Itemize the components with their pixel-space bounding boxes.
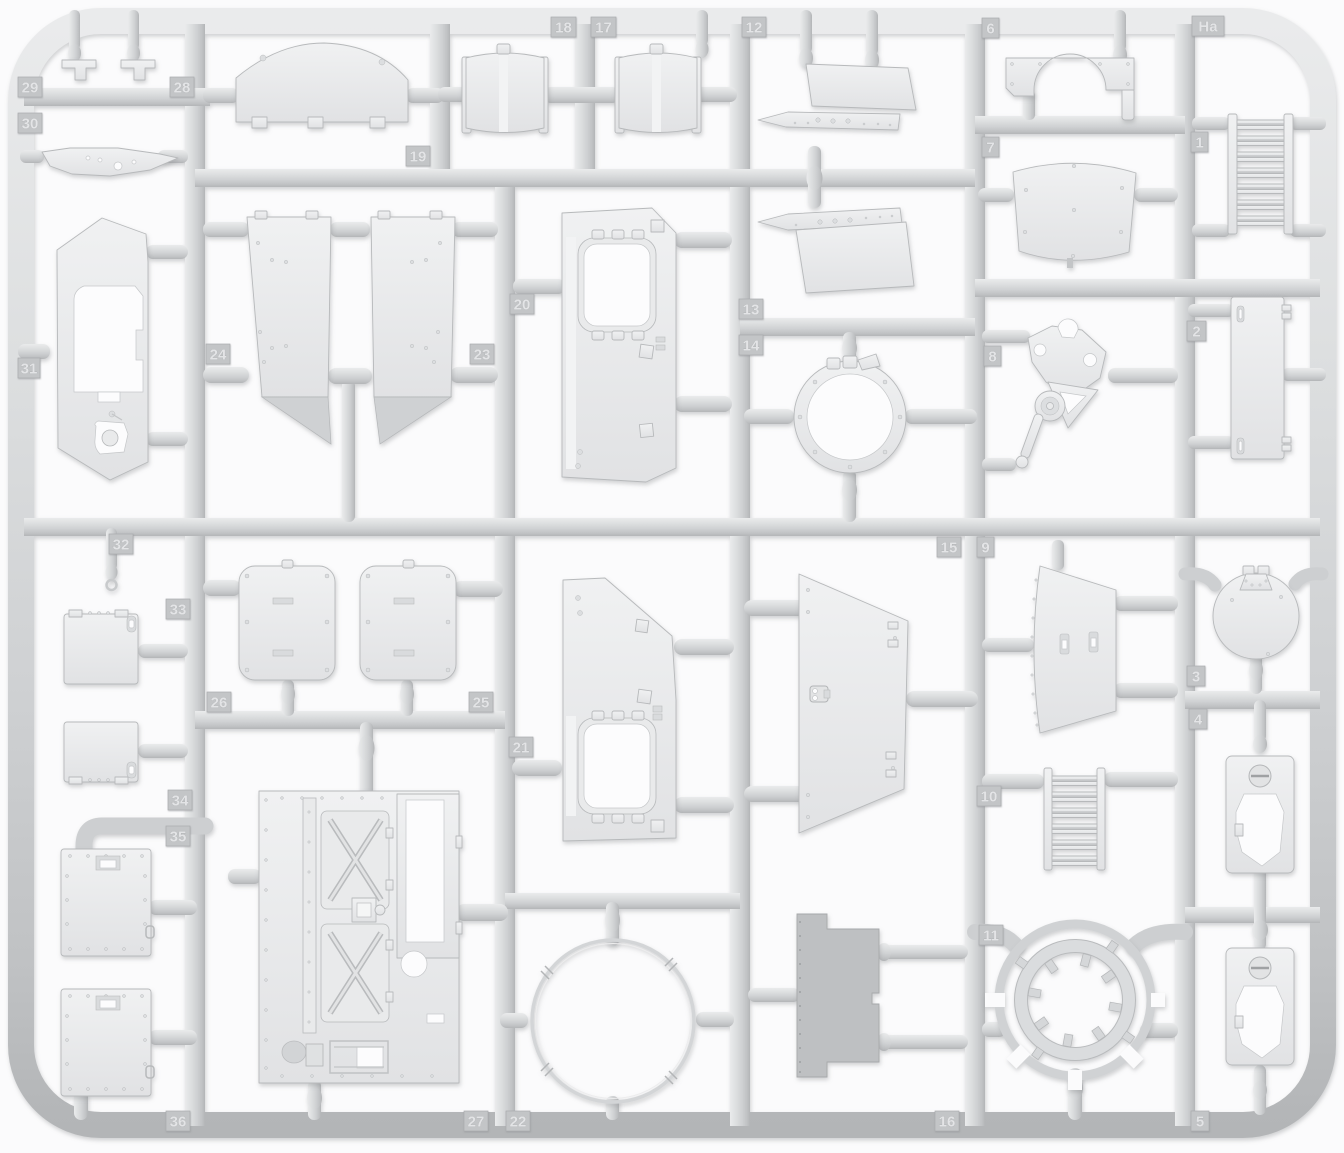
part-tag-label: 22: [510, 1114, 527, 1131]
part-tag-35: 35: [166, 826, 190, 846]
part-tag-17: 17: [591, 17, 616, 37]
part-2-door-panel: [1231, 297, 1291, 459]
part-tag-label: 3: [1192, 669, 1200, 686]
part-30-flat-bracket: [42, 148, 178, 176]
part-25-hatch: [360, 560, 456, 680]
part-4-frame-bracket: [1226, 756, 1294, 873]
part-tag-label: 21: [513, 740, 530, 757]
part-tag-15: 15: [937, 537, 961, 557]
part-20-cab-door: [562, 208, 676, 482]
part-tag-33: 33: [166, 599, 190, 619]
part-27-rear-door-panel: [259, 791, 462, 1083]
part-3-round-hatch: [1213, 566, 1299, 659]
part-tag-label: 7: [986, 140, 994, 157]
part-tag-label: 26: [211, 695, 228, 712]
part-14-hatch-ring: [794, 354, 906, 473]
part-tag-label: 30: [22, 116, 39, 133]
part-tag-label: 8: [988, 349, 996, 366]
sprue-runner: [505, 893, 740, 909]
sprue-runner: [495, 176, 515, 1126]
part-tag-label: 17: [595, 20, 612, 37]
part-tag-23: 23: [470, 344, 494, 364]
part-tag-label: 24: [210, 347, 227, 364]
part-9-curved-drum-shield: [1031, 566, 1116, 733]
part-32-pin-ring: [107, 580, 117, 590]
part-1-grille-ladder: [1228, 114, 1293, 234]
sprue-runner: [185, 24, 205, 1126]
part-tag-label: Ha: [1198, 19, 1218, 36]
part-tag-label: 11: [983, 928, 999, 945]
sprue-parts: [42, 43, 1299, 1102]
part-tag-1: 1: [1191, 132, 1208, 152]
part-tag-Ha: Ha: [1192, 16, 1224, 36]
part-31-hull-roof: [57, 218, 148, 480]
part-tag-24: 24: [206, 344, 230, 364]
sprue-photo: 29283031191817126Ha712423201314823215933…: [0, 0, 1344, 1153]
part-tag-9: 9: [977, 537, 994, 557]
part-7-curved-shield: [1013, 163, 1136, 268]
part-tag-22: 22: [506, 1111, 530, 1131]
part-tag-30: 30: [18, 113, 42, 133]
sprue-runner: [195, 169, 975, 187]
sprue-runner: [740, 318, 975, 336]
part-18-curved-panel: [462, 44, 548, 133]
sprue-runner: [430, 24, 450, 184]
sprue-runner: [1185, 907, 1320, 923]
part-tag-label: 23: [474, 347, 491, 364]
part-tag-label: 29: [22, 80, 39, 97]
part-tag-3: 3: [1187, 666, 1205, 686]
part-tag-label: 34: [172, 793, 189, 810]
part-13-fender-plate: [758, 208, 914, 293]
sprue-runner: [24, 518, 1320, 536]
part-tag-14: 14: [739, 335, 763, 355]
sprue-runner: [1185, 691, 1320, 709]
part-tag-label: 31: [21, 361, 38, 378]
part-tag-label: 16: [939, 1114, 956, 1131]
part-21-cab-door: [563, 578, 676, 841]
part-24-side-armor-panel: [247, 211, 331, 444]
part-tag-label: 27: [468, 1114, 485, 1131]
sprue-runner: [195, 711, 505, 729]
part-19-arched-roof-panel: [236, 43, 408, 128]
sprue-runner: [975, 116, 1185, 134]
part-tag-10: 10: [977, 786, 1001, 806]
part-16-hull-plate-dark: [797, 914, 879, 1077]
part-tag-label: 12: [746, 20, 763, 37]
part-tag-34: 34: [168, 790, 192, 810]
part-28-bracket: [121, 60, 155, 80]
part-5-frame-bracket: [1226, 948, 1294, 1065]
part-tag-label: 15: [941, 540, 958, 557]
part-tag-label: 10: [981, 789, 998, 806]
part-tag-label: 36: [170, 1114, 187, 1131]
part-tag-16: 16: [935, 1111, 959, 1131]
part-36-riveted-hatch: [61, 989, 154, 1096]
part-tag-label: 1: [1195, 135, 1203, 152]
part-tag-25: 25: [469, 692, 493, 712]
part-tag-label: 13: [743, 302, 760, 319]
sprue-runner: [730, 24, 750, 1126]
part-34-stowage-box: [64, 722, 138, 784]
part-tag-12: 12: [742, 17, 766, 37]
part-tag-36: 36: [166, 1111, 190, 1131]
part-tag-label: 14: [743, 338, 760, 355]
part-tag-26: 26: [207, 692, 231, 712]
part-tag-label: 32: [113, 537, 130, 554]
part-tag-13: 13: [739, 299, 763, 319]
part-tag-11: 11: [979, 925, 1003, 945]
part-tag-7: 7: [982, 137, 999, 157]
part-22-ring-gasket: [532, 940, 694, 1102]
part-tag-label: 19: [410, 149, 427, 166]
part-29-bracket: [62, 60, 96, 80]
part-tag-20: 20: [510, 294, 534, 314]
part-tag-21: 21: [509, 737, 533, 757]
part-tag-5: 5: [1191, 1111, 1209, 1131]
part-tag-32: 32: [109, 534, 133, 554]
part-tag-28: 28: [170, 77, 194, 97]
part-tag-29: 29: [18, 77, 42, 97]
part-tag-label: 6: [986, 21, 994, 38]
part-26-hatch: [239, 560, 335, 680]
part-tag-label: 5: [1196, 1114, 1204, 1131]
part-tag-6: 6: [982, 18, 999, 38]
part-23-side-armor-panel: [371, 211, 455, 444]
part-tag-label: 25: [473, 695, 490, 712]
part-tag-label: 9: [981, 540, 989, 557]
part-12-fender-plate: [758, 64, 916, 130]
part-tag-label: 2: [1192, 324, 1200, 341]
part-tag-label: 35: [170, 829, 187, 846]
part-15-armor-plate: [799, 574, 908, 833]
part-tag-label: 18: [555, 20, 572, 37]
part-tag-label: 33: [170, 602, 187, 619]
part-tag-31: 31: [18, 358, 40, 378]
model-kit-sprue-image: 29283031191817126Ha712423201314823215933…: [0, 0, 1344, 1153]
part-tag-19: 19: [406, 146, 430, 166]
part-tag-label: 28: [174, 80, 191, 97]
sprue-runner: [975, 279, 1320, 297]
part-33-stowage-box: [64, 610, 138, 684]
part-tag-4: 4: [1189, 709, 1207, 729]
part-17-curved-panel: [615, 44, 701, 133]
part-10-grille-ladder: [1044, 768, 1105, 870]
part-tag-27: 27: [464, 1111, 488, 1131]
part-8-suspension-bracket: [1016, 319, 1106, 468]
part-tag-label: 20: [514, 297, 531, 314]
sprue-runner: [575, 24, 595, 184]
part-tag-8: 8: [984, 346, 1001, 366]
part-tag-label: 4: [1194, 712, 1203, 729]
part-tag-18: 18: [551, 17, 576, 37]
part-35-riveted-hatch: [61, 849, 154, 956]
part-tag-2: 2: [1187, 321, 1206, 341]
